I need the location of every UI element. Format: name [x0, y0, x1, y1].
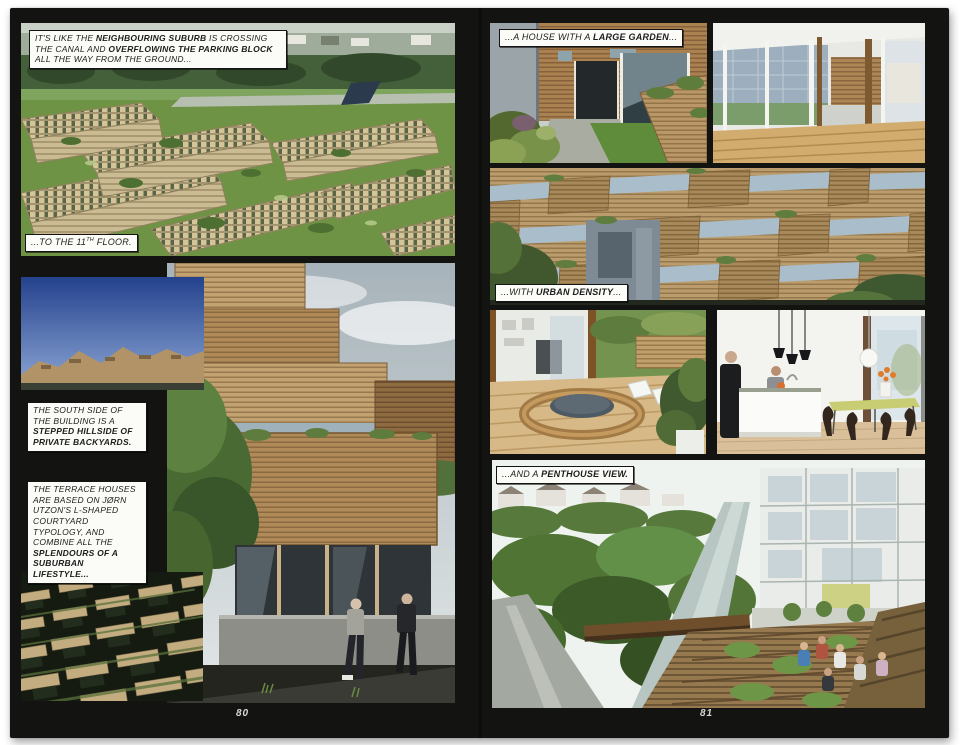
caption-urban-density: ...WITH URBAN DENSITY... — [495, 284, 628, 302]
caption-penthouse-view: ...AND A PENTHOUSE VIEW. — [496, 466, 634, 484]
book-scan-background: { "colors": { "spread_bg": "#131311", "p… — [0, 0, 960, 745]
photo-canal-penthouse-view — [492, 460, 925, 708]
photo-kitchen-interior — [717, 310, 925, 454]
page-number-right: 81 — [700, 708, 713, 719]
photo-glass-terrace — [713, 23, 925, 163]
photo-blue-sky-mountain — [21, 277, 204, 390]
caption-to-11th-floor: ...TO THE 11TH FLOOR. — [25, 234, 138, 252]
caption-crossing-suburb: IT'S LIKE THE NEIGHBOURING SUBURB IS CRO… — [29, 30, 287, 69]
photo-terrace-grid-aerial — [21, 572, 203, 701]
photo-stepped-backyards — [167, 263, 455, 703]
caption-terrace-houses: THE TERRACE HOUSES ARE BASED ON JØRN UTZ… — [27, 481, 147, 584]
page-number-left: 80 — [236, 708, 249, 719]
photo-wood-deck-bench — [490, 310, 706, 454]
caption-large-garden: ...A HOUSE WITH A LARGE GARDEN... — [499, 29, 683, 47]
caption-south-side: THE SOUTH SIDE OF THE BUILDING IS A STEP… — [27, 402, 147, 452]
